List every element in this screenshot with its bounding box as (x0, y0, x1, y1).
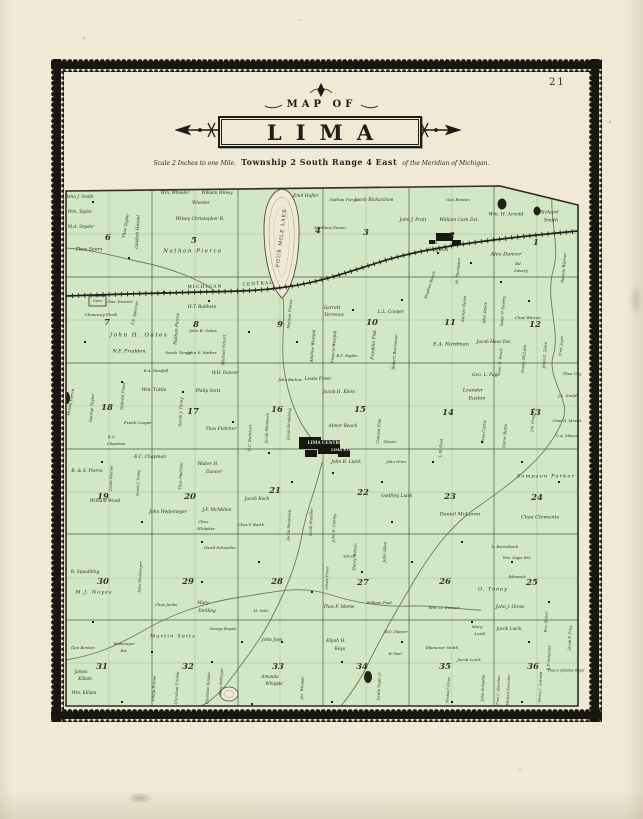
small-lake (220, 687, 238, 701)
atlas-page: { "page": {"number": "21"}, "title": { "… (0, 0, 643, 819)
township-map (0, 0, 643, 819)
